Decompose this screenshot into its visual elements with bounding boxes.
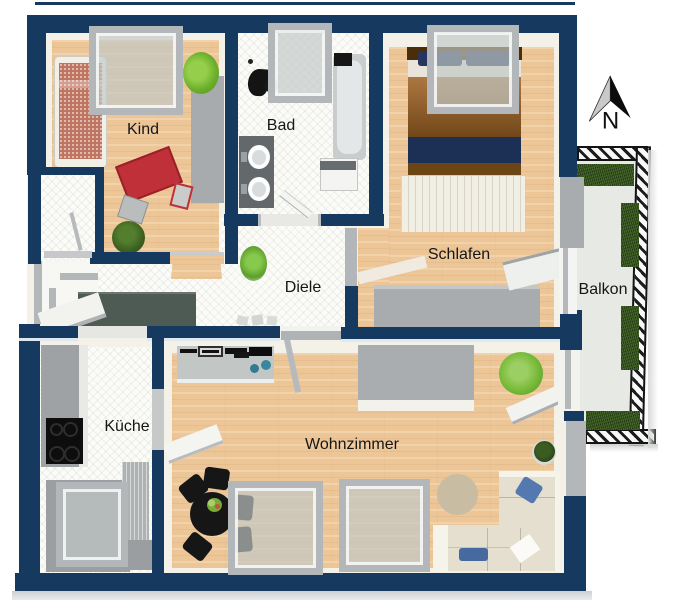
- svg-text:N: N: [602, 108, 619, 133]
